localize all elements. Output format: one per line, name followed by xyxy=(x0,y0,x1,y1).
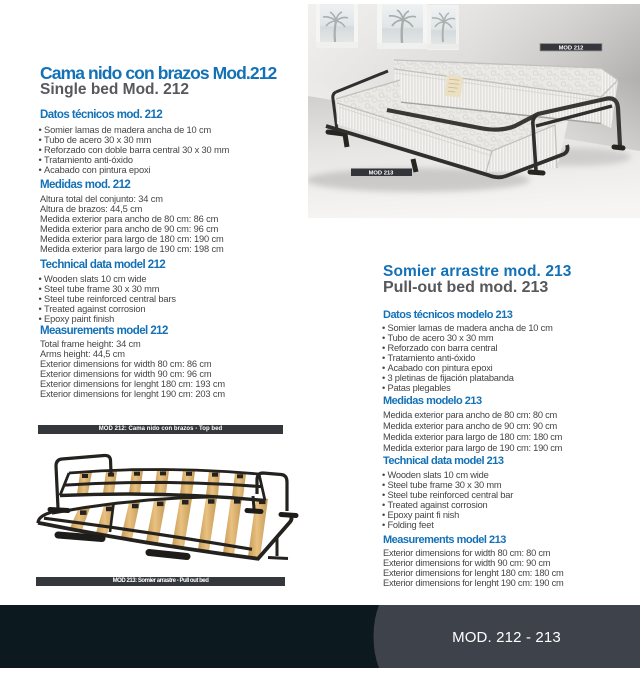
svg-text:MOD 213: MOD 213 xyxy=(369,170,395,176)
svg-text:MOD 212: MOD 212 xyxy=(559,45,584,51)
